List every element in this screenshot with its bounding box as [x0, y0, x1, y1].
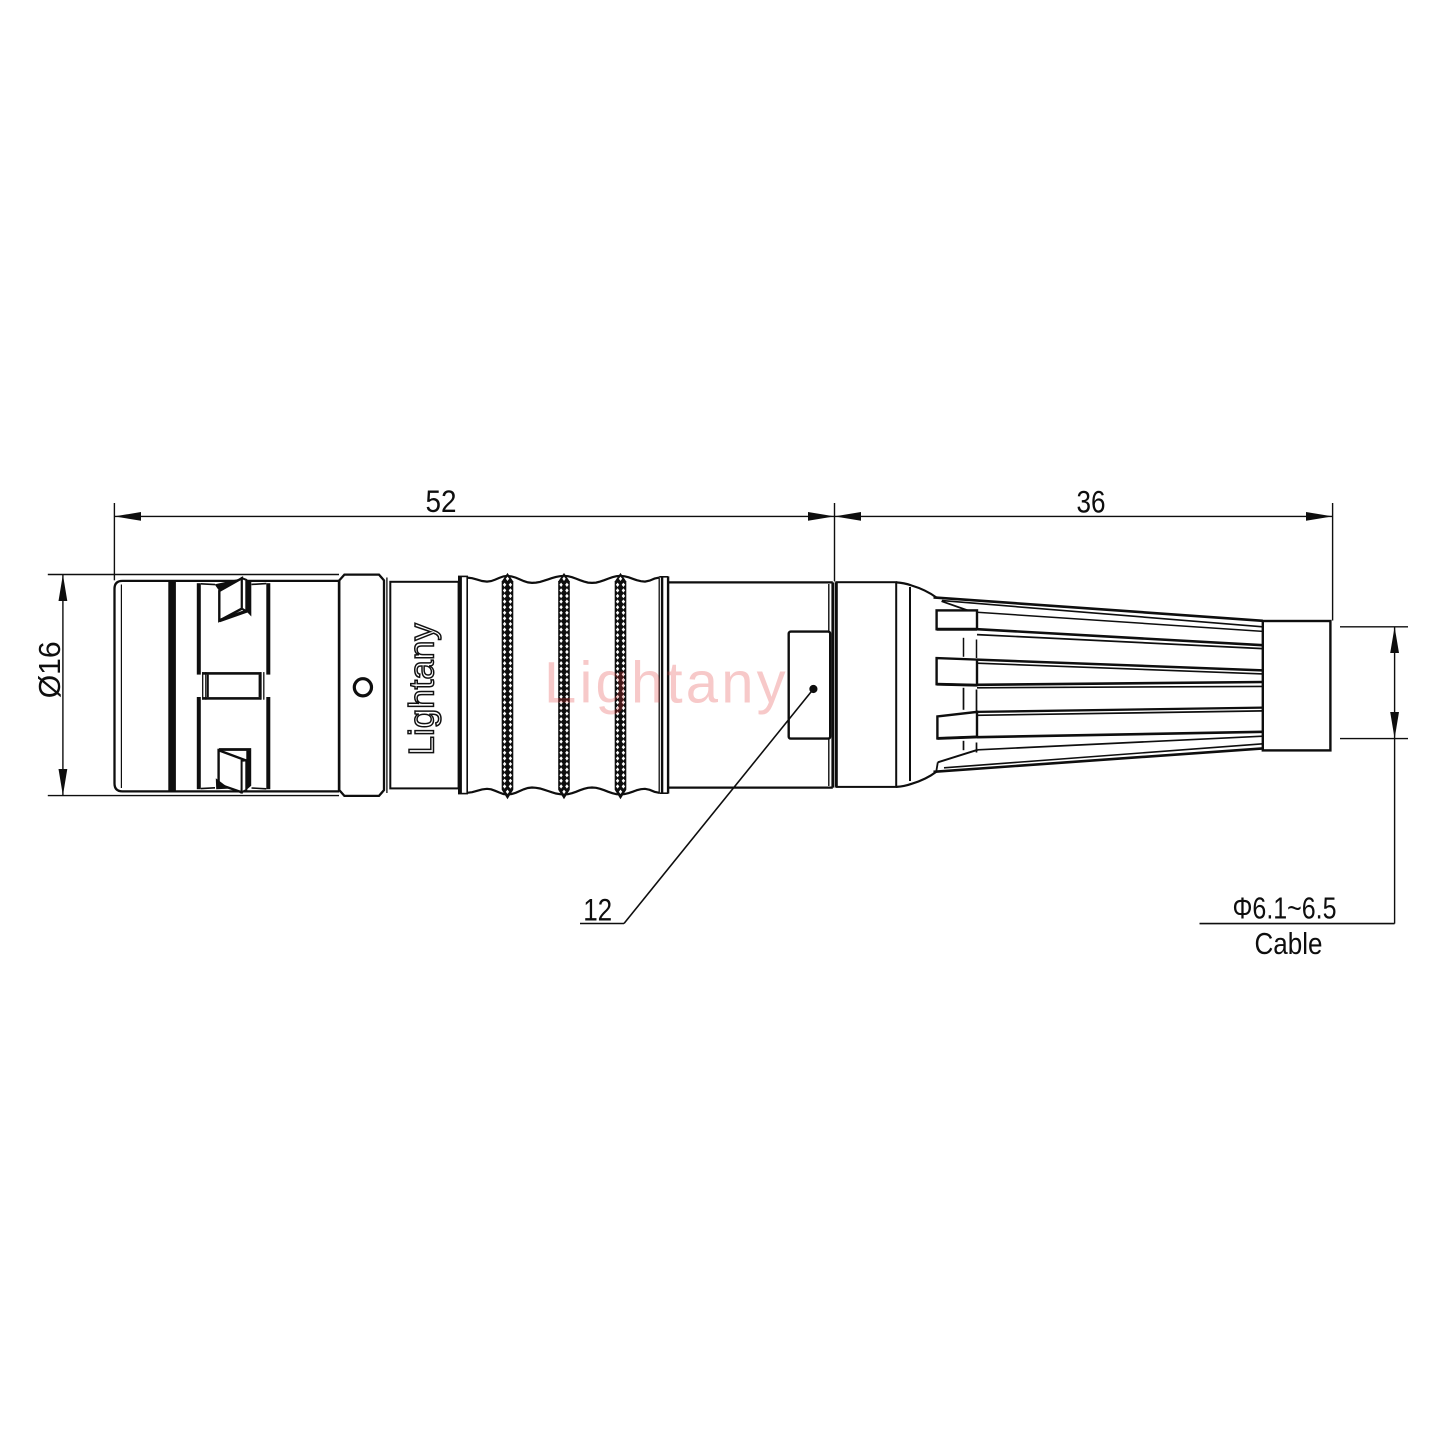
svg-text:Lightany: Lightany — [544, 651, 789, 716]
svg-text:Ø16: Ø16 — [32, 641, 67, 698]
svg-text:Cable: Cable — [1255, 926, 1323, 961]
svg-text:12: 12 — [583, 892, 612, 928]
svg-text:Lightany: Lightany — [403, 623, 442, 756]
svg-text:52: 52 — [426, 483, 457, 519]
svg-text:36: 36 — [1077, 484, 1106, 520]
svg-text:Φ6.1~6.5: Φ6.1~6.5 — [1233, 891, 1337, 926]
